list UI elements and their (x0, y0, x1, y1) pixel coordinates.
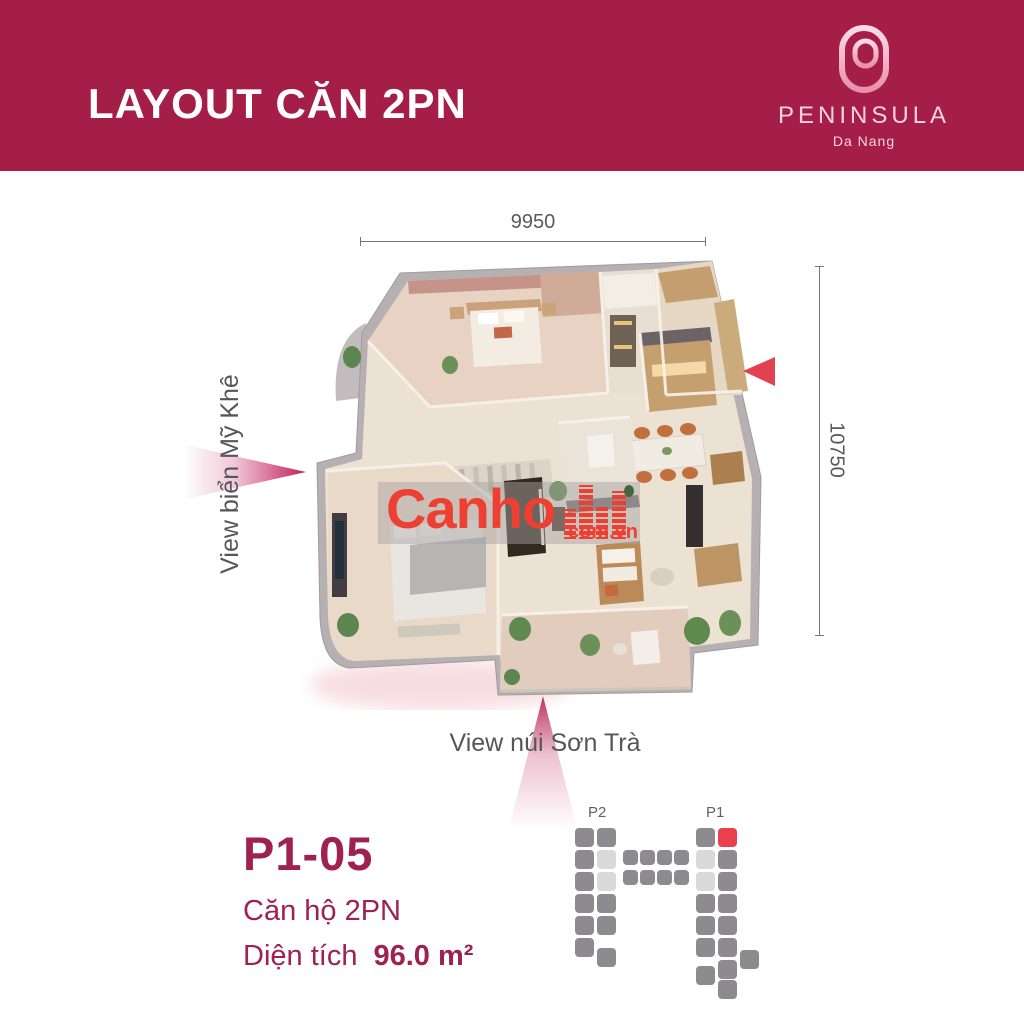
brand-logo: PENINSULA Da Nang (778, 24, 950, 149)
minimap-unit (718, 960, 737, 979)
minimap-unit (597, 948, 616, 967)
unit-area-label: Diện tích (243, 940, 357, 972)
dimension-width-value: 9950 (360, 211, 706, 234)
minimap-unit (718, 916, 737, 935)
minimap-unit (696, 828, 715, 847)
layout-sheet: LAYOUT CĂN 2PN PENINSULA Da Nang 9950 10… (0, 0, 1024, 1024)
brand-name: PENINSULA (778, 102, 950, 130)
minimap-unit (640, 850, 655, 865)
dimension-height-line (815, 266, 824, 636)
minimap-unit (740, 950, 759, 969)
minimap-unit (718, 938, 737, 957)
dimension-height-value: 10750 (825, 422, 848, 478)
minimap-unit (623, 850, 638, 865)
dimension-height: 10750 (815, 266, 855, 634)
minimap-unit (575, 916, 594, 935)
minimap-unit (696, 872, 715, 891)
minimap-unit (718, 894, 737, 913)
entrance-arrow-icon (743, 357, 775, 386)
dimension-width: 9950 (360, 211, 706, 246)
unit-info: P1-05 Căn hộ 2PN Diện tích96.0 m² (243, 826, 473, 973)
minimap-unit (597, 916, 616, 935)
minimap-unit (696, 894, 715, 913)
minimap-unit (575, 938, 594, 957)
view-arrow-left-icon (186, 440, 306, 504)
brand-city: Da Nang (778, 133, 950, 149)
minimap-unit (597, 872, 616, 891)
minimap-unit (597, 894, 616, 913)
unit-area: Diện tích96.0 m² (243, 940, 473, 973)
minimap-unit (674, 850, 689, 865)
minimap-unit (657, 870, 672, 885)
unit-type: Căn hộ 2PN (243, 895, 473, 928)
minimap-unit (718, 872, 737, 891)
page-title: LAYOUT CĂN 2PN (88, 80, 467, 128)
minimap-unit (623, 870, 638, 885)
minimap-unit (597, 850, 616, 869)
minimap-unit (640, 870, 655, 885)
minimap-unit (597, 828, 616, 847)
minimap-unit (718, 980, 737, 999)
minimap-unit (696, 938, 715, 957)
view-label-left: View biển Mỹ Khê (216, 374, 242, 574)
watermark-name: Canho (386, 476, 555, 541)
minimap-unit (575, 828, 594, 847)
minimap-unit (575, 872, 594, 891)
brand-monogram-icon (838, 24, 890, 94)
minimap-unit (696, 916, 715, 935)
watermark: Canho com.vn (378, 482, 640, 544)
minimap-unit (674, 870, 689, 885)
tower-unit-grid (568, 828, 774, 1006)
minimap-unit-highlighted (718, 828, 737, 847)
minimap-unit (696, 966, 715, 985)
entry-wardrobe (640, 327, 717, 412)
unit-area-value: 96.0 m² (373, 940, 473, 972)
minimap-unit (696, 850, 715, 869)
dimension-width-line (360, 237, 706, 246)
minimap-unit (718, 850, 737, 869)
view-label-bottom: View núi Sơn Trà (445, 729, 645, 758)
header-banner: LAYOUT CĂN 2PN PENINSULA Da Nang (0, 0, 1024, 171)
tower-label-p1: P1 (706, 804, 724, 821)
minimap-unit (657, 850, 672, 865)
minimap-unit (575, 850, 594, 869)
view-arrow-up-icon (506, 696, 580, 828)
minimap-unit (575, 894, 594, 913)
tower-label-p2: P2 (588, 804, 606, 821)
watermark-suffix: com.vn (568, 521, 638, 544)
unit-code: P1-05 (243, 826, 473, 881)
